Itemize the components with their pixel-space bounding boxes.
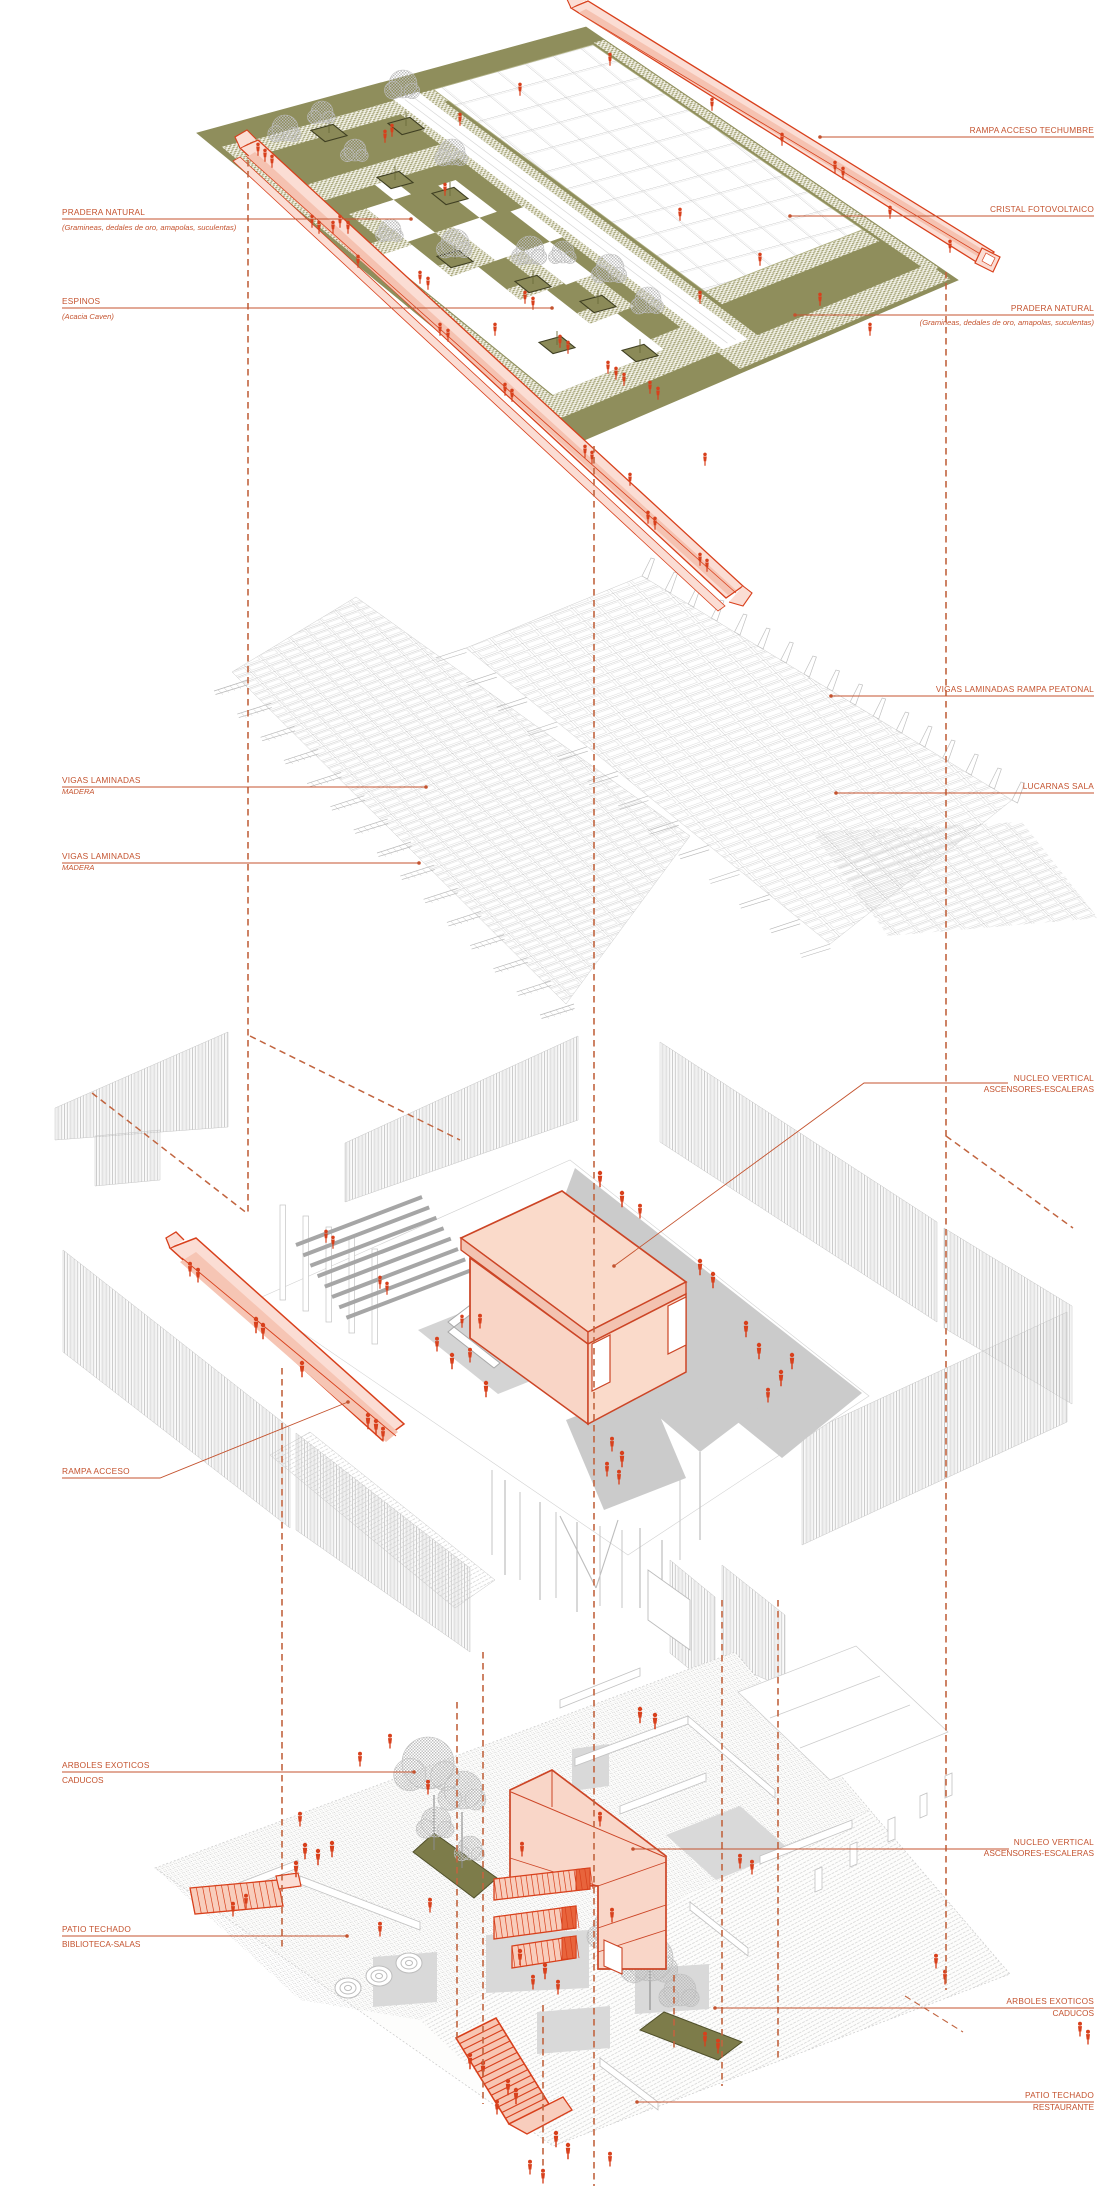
svg-text:CRISTAL FOTOVOLTAICO: CRISTAL FOTOVOLTAICO: [990, 204, 1094, 214]
svg-text:VIGAS LAMINADAS RAMPA PEATONAL: VIGAS LAMINADAS RAMPA PEATONAL: [936, 684, 1094, 694]
svg-text:ARBOLES EXOTICOS: ARBOLES EXOTICOS: [1006, 1996, 1094, 2006]
svg-text:MADERA: MADERA: [62, 787, 95, 796]
svg-text:(Gramineas, dedales de oro, am: (Gramineas, dedales de oro, amapolas, su…: [62, 223, 237, 232]
svg-text:(Acacia Caven): (Acacia Caven): [62, 312, 114, 321]
svg-text:(Gramineas, dedales de oro, am: (Gramineas, dedales de oro, amapolas, su…: [920, 318, 1095, 327]
svg-text:NUCLEO VERTICAL: NUCLEO VERTICAL: [1014, 1837, 1094, 1847]
svg-text:RAMPA ACCESO TECHUMBRE: RAMPA ACCESO TECHUMBRE: [970, 125, 1095, 135]
svg-text:ASCENSORES-ESCALERAS: ASCENSORES-ESCALERAS: [984, 1848, 1095, 1858]
svg-text:PRADERA NATURAL: PRADERA NATURAL: [62, 207, 145, 217]
svg-text:NUCLEO VERTICAL: NUCLEO VERTICAL: [1014, 1073, 1094, 1083]
svg-text:ESPINOS: ESPINOS: [62, 296, 101, 306]
svg-text:PATIO TECHADO: PATIO TECHADO: [1025, 2090, 1094, 2100]
svg-text:LUCARNAS SALA: LUCARNAS SALA: [1023, 781, 1095, 791]
svg-text:PATIO TECHADO: PATIO TECHADO: [62, 1924, 131, 1934]
svg-text:RAMPA ACCESO: RAMPA ACCESO: [62, 1466, 130, 1476]
svg-text:ASCENSORES-ESCALERAS: ASCENSORES-ESCALERAS: [984, 1084, 1095, 1094]
svg-text:VIGAS LAMINADAS: VIGAS LAMINADAS: [62, 775, 141, 785]
svg-text:ARBOLES EXOTICOS: ARBOLES EXOTICOS: [62, 1760, 150, 1770]
svg-text:VIGAS LAMINADAS: VIGAS LAMINADAS: [62, 851, 141, 861]
svg-text:PRADERA NATURAL: PRADERA NATURAL: [1011, 303, 1094, 313]
svg-text:CADUCOS: CADUCOS: [1053, 2008, 1095, 2018]
svg-text:CADUCOS: CADUCOS: [62, 1775, 104, 1785]
svg-text:RESTAURANTE: RESTAURANTE: [1033, 2102, 1095, 2112]
svg-text:MADERA: MADERA: [62, 863, 95, 872]
svg-text:BIBLIOTECA-SALAS: BIBLIOTECA-SALAS: [62, 1939, 141, 1949]
